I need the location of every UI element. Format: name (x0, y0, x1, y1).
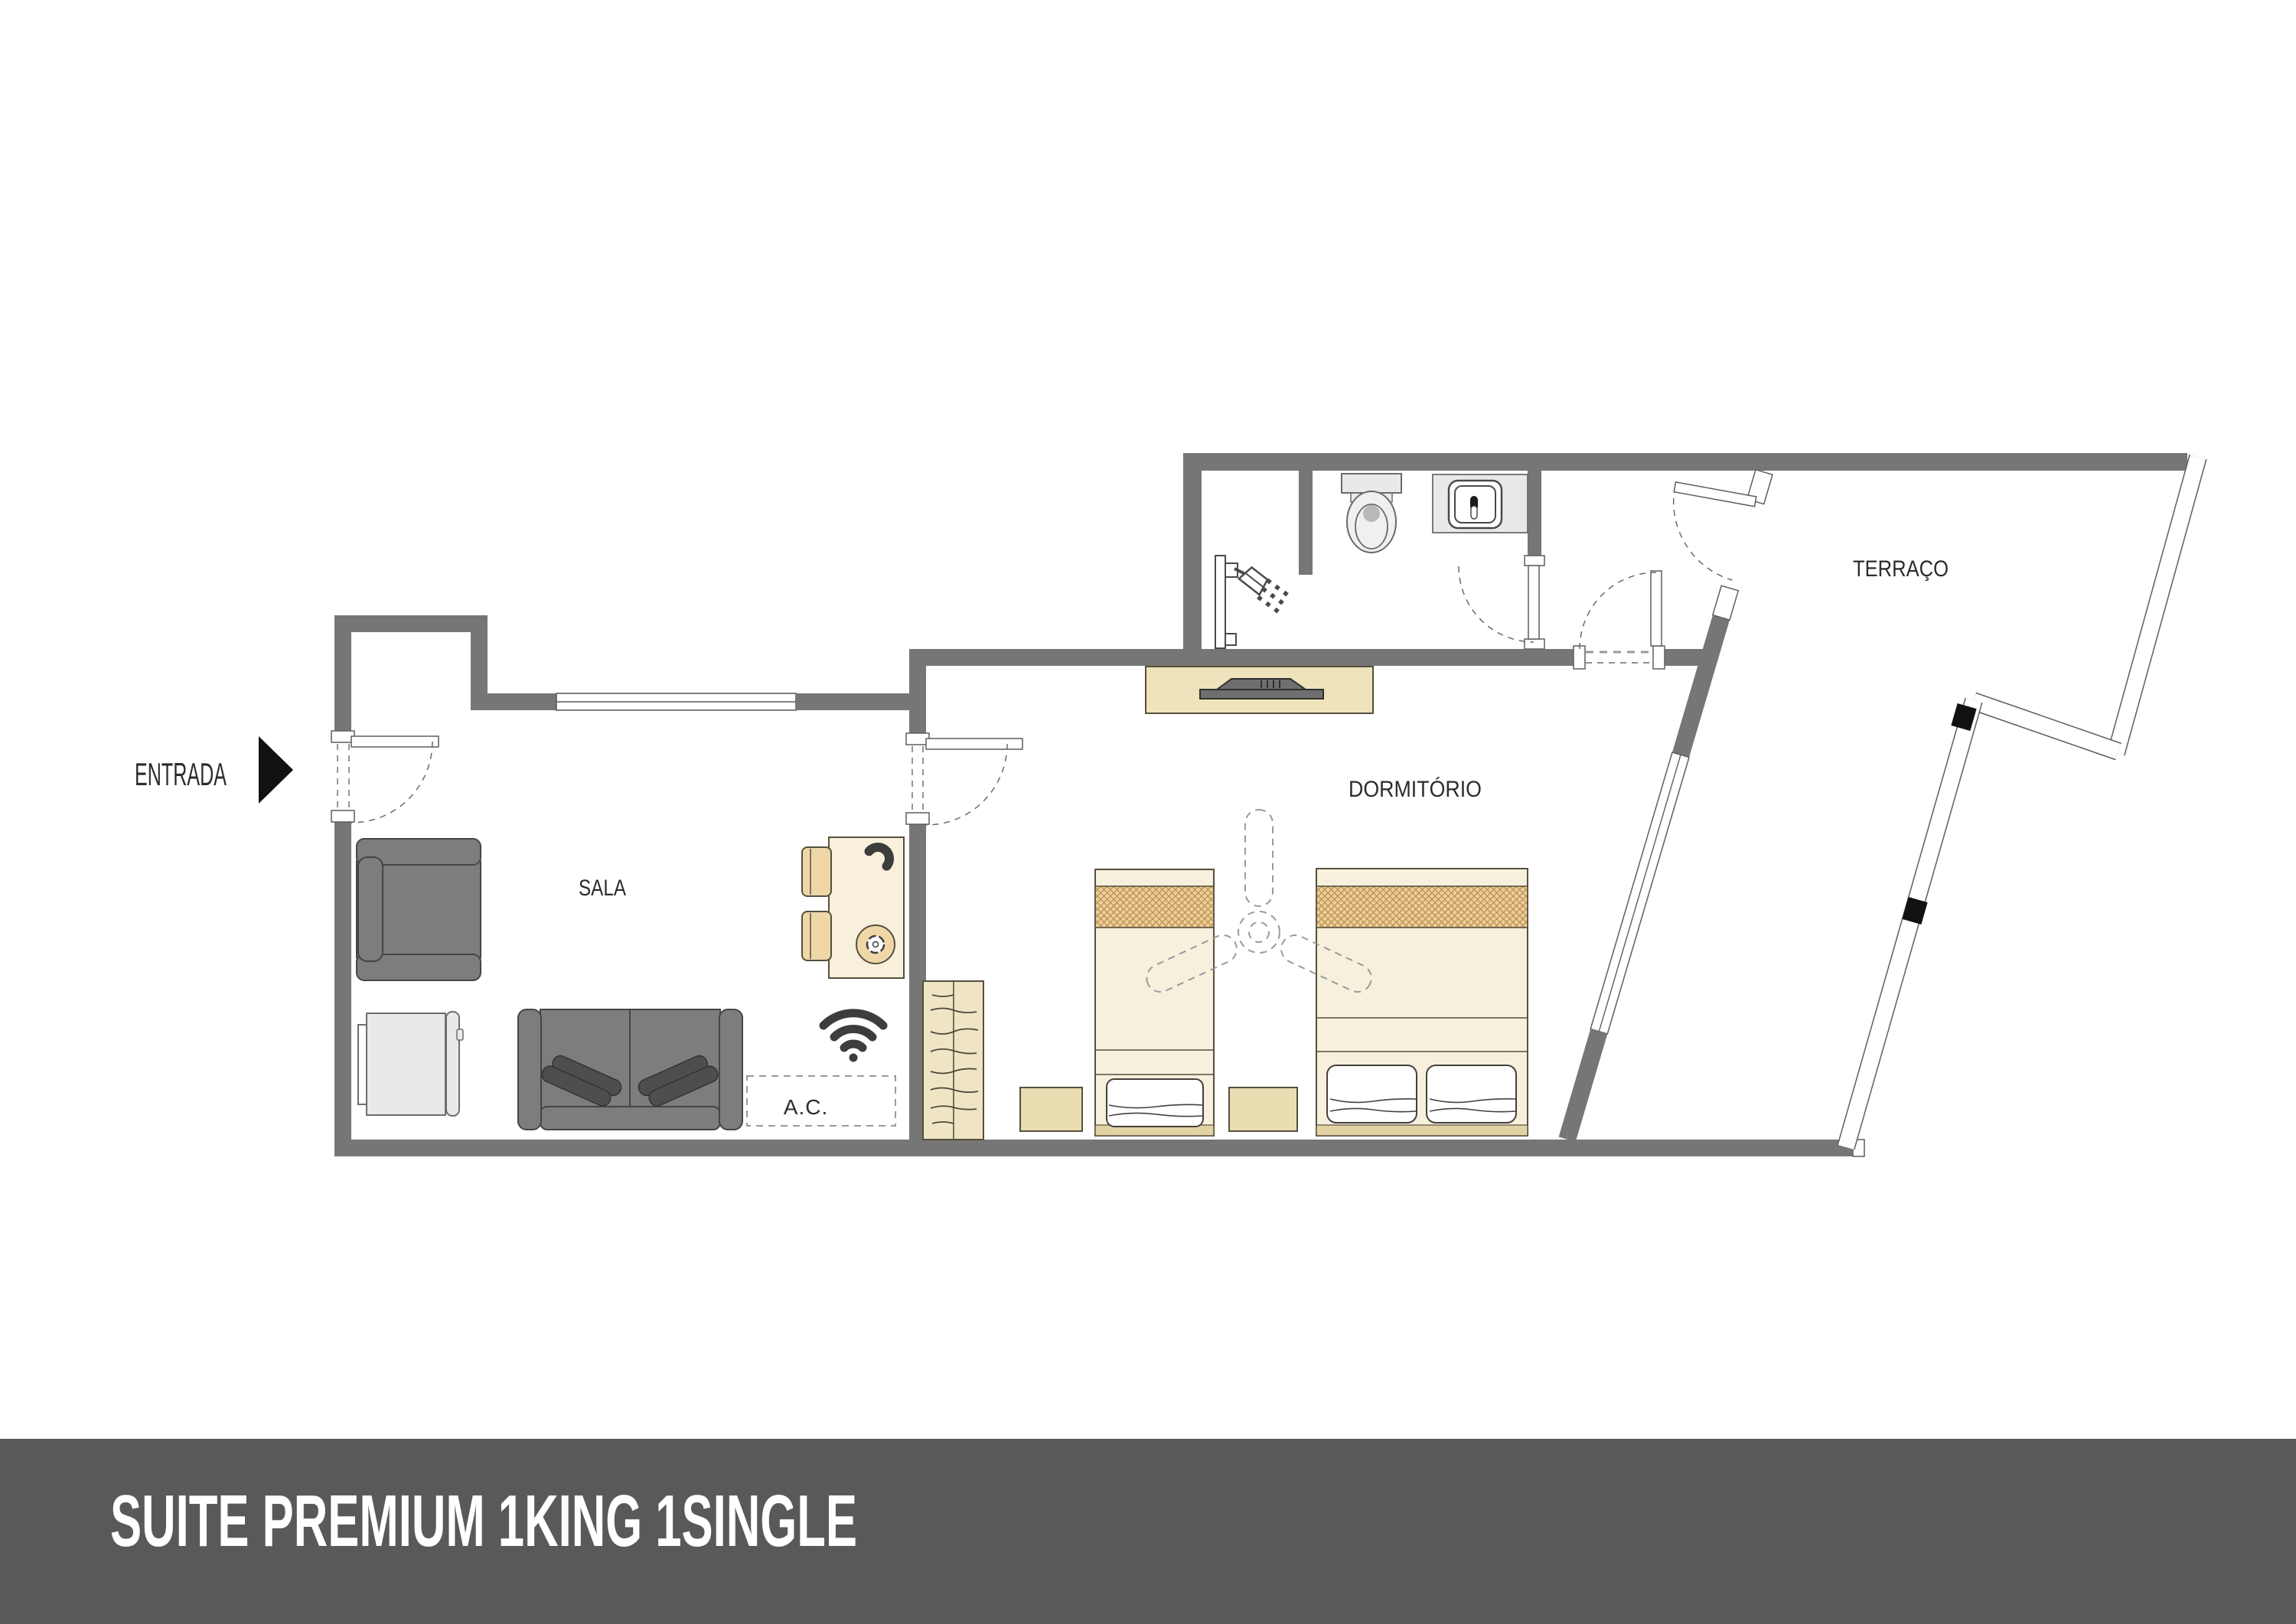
svg-text:ENTRADA: ENTRADA (135, 756, 227, 792)
svg-text:SUITE PREMIUM 1KING 1SINGLE: SUITE PREMIUM 1KING 1SINGLE (110, 1480, 857, 1562)
svg-text:TERRAÇO: TERRAÇO (1853, 556, 1949, 582)
svg-text:A.C.: A.C. (784, 1095, 828, 1119)
svg-text:DORMITÓRIO: DORMITÓRIO (1349, 777, 1482, 802)
svg-text:SALA: SALA (579, 876, 626, 901)
